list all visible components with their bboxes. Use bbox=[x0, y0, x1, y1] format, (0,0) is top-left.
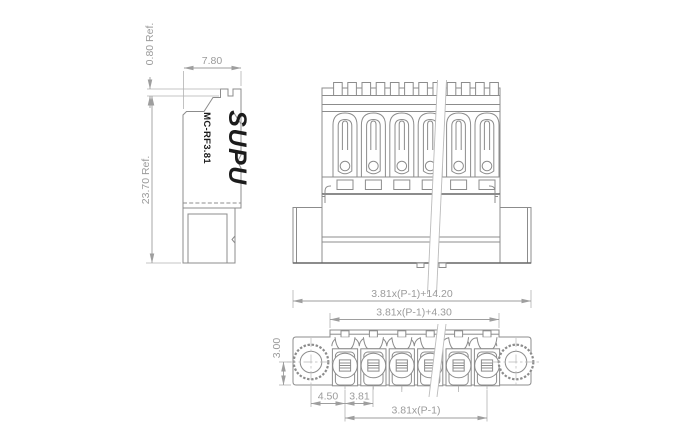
technical-drawing-canvas: SUPU MC-RF3.81 0.80 Ref. 7.80 23.70 Ref. bbox=[0, 0, 680, 440]
dim-780: 7.80 bbox=[202, 55, 223, 67]
screw-terminal bbox=[361, 331, 386, 390]
bottom-view bbox=[287, 324, 540, 397]
plug-key-bumps bbox=[476, 83, 499, 96]
dim-080-ref: 0.80 Ref. bbox=[144, 23, 156, 66]
terminal-window bbox=[365, 180, 381, 190]
dim-450: 4.50 bbox=[318, 391, 339, 403]
header-hatched-strip bbox=[322, 237, 500, 242]
dim-overall: 3.81x(P-1)+14.20 bbox=[371, 288, 453, 300]
plug-key-bumps bbox=[362, 83, 385, 96]
screw-terminal bbox=[332, 331, 357, 390]
header-flange-right bbox=[500, 208, 531, 264]
header-flange-left bbox=[293, 208, 322, 264]
brand-logo: SUPU bbox=[223, 110, 251, 185]
plug-key-bumps bbox=[447, 83, 470, 96]
release-lever bbox=[361, 113, 385, 177]
screw-terminal bbox=[389, 331, 414, 390]
side-view: SUPU MC-RF3.81 bbox=[183, 89, 251, 263]
side-view-lower-inner bbox=[188, 214, 227, 263]
release-lever bbox=[390, 113, 414, 177]
terminal-window bbox=[451, 180, 467, 190]
break-gap bbox=[428, 80, 447, 294]
front-view bbox=[293, 80, 531, 294]
model-label: MC-RF3.81 bbox=[201, 112, 212, 164]
top-strip-hatched bbox=[322, 96, 500, 105]
plug-key-bumps bbox=[334, 83, 357, 96]
dim-2370-ref: 23.70 Ref. bbox=[140, 156, 152, 204]
release-lever bbox=[333, 113, 357, 177]
release-lever bbox=[475, 113, 499, 177]
screw-terminal bbox=[474, 331, 499, 390]
terminal-window bbox=[479, 180, 495, 190]
dim-300: 3.00 bbox=[271, 338, 283, 359]
dim-span: 3.81x(P-1) bbox=[391, 405, 440, 417]
solder-peg-right bbox=[439, 263, 446, 268]
terminal-window bbox=[394, 180, 410, 190]
dim-inner: 3.81x(P-1)+4.30 bbox=[376, 307, 452, 319]
plug-key-bumps bbox=[390, 83, 413, 96]
release-lever bbox=[447, 113, 471, 177]
terminal-window bbox=[337, 180, 353, 190]
dim-381: 3.81 bbox=[349, 391, 370, 403]
drawing-svg: SUPU MC-RF3.81 0.80 Ref. 7.80 23.70 Ref. bbox=[0, 0, 680, 440]
solder-peg-left bbox=[417, 263, 424, 268]
screw-terminal bbox=[446, 331, 471, 390]
